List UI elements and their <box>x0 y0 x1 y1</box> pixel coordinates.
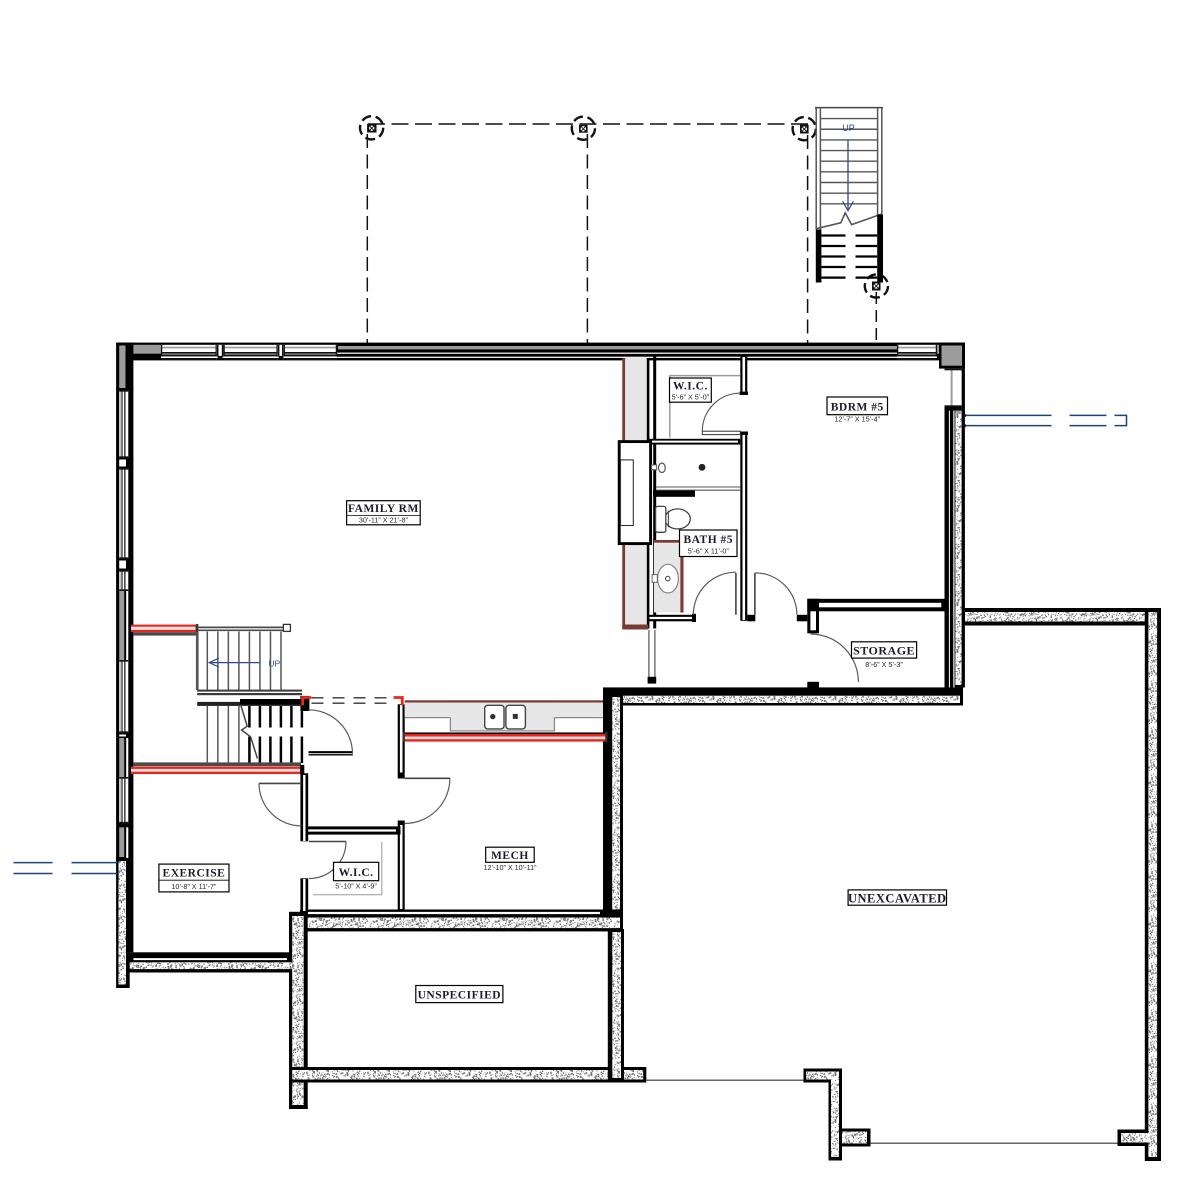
svg-text:12’-7” X 15’-4”: 12’-7” X 15’-4” <box>834 415 880 424</box>
svg-text:5’-6” X 11’-0”: 5’-6” X 11’-0” <box>688 547 730 556</box>
svg-text:W.I.C.: W.I.C. <box>339 867 374 879</box>
svg-text:5’-10” X 4’-9”: 5’-10” X 4’-9” <box>335 882 377 891</box>
svg-text:UNSPECIFIED: UNSPECIFIED <box>418 989 501 1001</box>
svg-text:UP: UP <box>842 123 855 133</box>
svg-text:30’-11” X 21’-8”: 30’-11” X 21’-8” <box>359 515 409 524</box>
svg-text:FAMILY RM: FAMILY RM <box>348 503 419 515</box>
svg-text:10’-8” X 11’-7”: 10’-8” X 11’-7” <box>171 882 217 891</box>
svg-text:W.I.C.: W.I.C. <box>673 380 708 392</box>
svg-text:UNEXCAVATED: UNEXCAVATED <box>848 892 947 906</box>
svg-text:8’-6” X 5’-3”: 8’-6” X 5’-3” <box>865 660 903 669</box>
svg-text:BDRM #5: BDRM #5 <box>831 401 884 413</box>
svg-text:UP: UP <box>268 659 280 669</box>
svg-text:12’-10” X 10’-11”: 12’-10” X 10’-11” <box>484 863 538 872</box>
svg-text:EXERCISE: EXERCISE <box>163 868 226 880</box>
svg-text:STORAGE: STORAGE <box>853 644 915 658</box>
svg-text:BATH #5: BATH #5 <box>683 534 733 546</box>
svg-text:5’-6” X 5’-0”: 5’-6” X 5’-0” <box>672 393 710 402</box>
svg-text:MECH: MECH <box>491 850 529 862</box>
